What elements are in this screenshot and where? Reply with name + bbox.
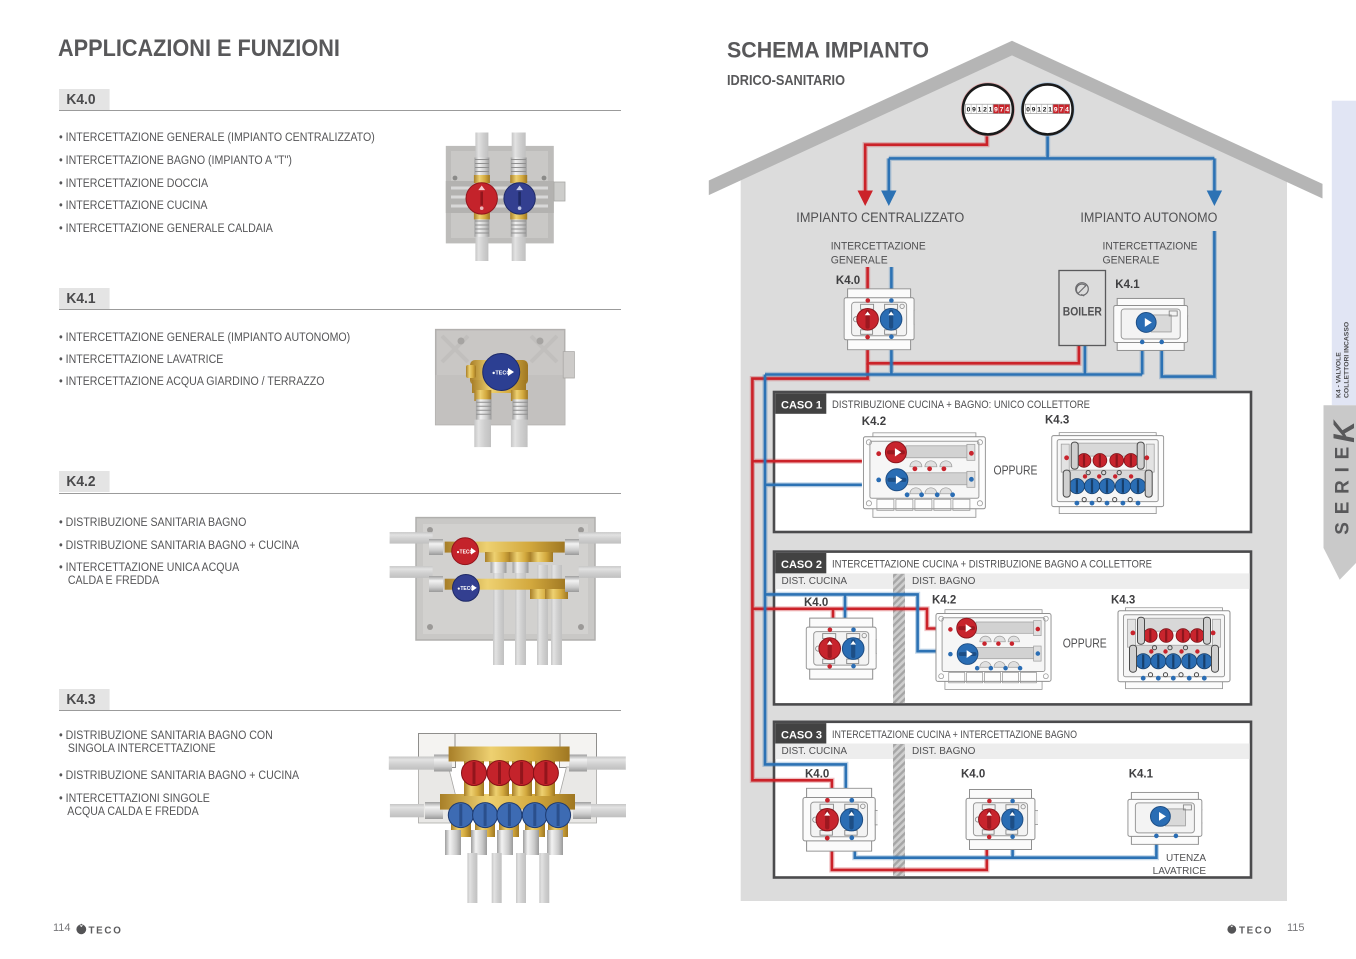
svg-text:K4 - VALVOLE: K4 - VALVOLE — [1336, 352, 1343, 398]
svg-text:IMPIANTO AUTONOMO: IMPIANTO AUTONOMO — [1080, 210, 1217, 225]
svg-text:K4.0: K4.0 — [805, 768, 829, 780]
svg-text:CASO 2: CASO 2 — [781, 559, 822, 571]
svg-text:K4.3: K4.3 — [1045, 414, 1069, 426]
svg-text:K4.2: K4.2 — [932, 594, 956, 606]
svg-text:SCHEMA IMPIANTO: SCHEMA IMPIANTO — [727, 38, 929, 63]
svg-text:K4.0: K4.0 — [804, 597, 828, 609]
svg-text:9: 9 — [972, 106, 976, 113]
svg-text:INTERCETTAZIONE: INTERCETTAZIONE — [831, 241, 926, 253]
svg-text:7: 7 — [1059, 106, 1063, 113]
svg-text:IDRICO-SANITARIO: IDRICO-SANITARIO — [727, 72, 845, 89]
svg-text:K4.2: K4.2 — [862, 416, 886, 428]
svg-text:K4.0: K4.0 — [961, 768, 985, 780]
svg-text:4: 4 — [1065, 106, 1069, 113]
svg-text:UTENZA: UTENZA — [1166, 853, 1206, 864]
svg-text:●TECO: ●TECO — [457, 586, 474, 592]
svg-text:BOILER: BOILER — [1063, 304, 1102, 318]
svg-text:9: 9 — [994, 106, 998, 113]
svg-text:●TECO: ●TECO — [457, 550, 474, 556]
svg-text:DIST. CUCINA: DIST. CUCINA — [782, 746, 848, 757]
svg-text:K: K — [1328, 419, 1356, 443]
svg-text:7: 7 — [1000, 106, 1004, 113]
svg-text:9: 9 — [1054, 106, 1058, 113]
svg-text:IMPIANTO CENTRALIZZATO: IMPIANTO CENTRALIZZATO — [796, 210, 964, 225]
svg-text:CASO 3: CASO 3 — [781, 729, 822, 741]
svg-text:GENERALE: GENERALE — [1103, 254, 1160, 266]
svg-text:K4.1: K4.1 — [1115, 279, 1140, 291]
svg-text:2: 2 — [1043, 106, 1047, 113]
svg-text:CASO 1: CASO 1 — [781, 400, 822, 412]
svg-text:1: 1 — [978, 106, 982, 113]
svg-text:OPPURE: OPPURE — [994, 464, 1038, 478]
svg-text:DIST. BAGNO: DIST. BAGNO — [912, 576, 976, 587]
svg-text:INTERCETTAZIONE CUCINA + INTER: INTERCETTAZIONE CUCINA + INTERCETTAZIONE… — [832, 729, 1077, 741]
svg-text:9: 9 — [1032, 106, 1036, 113]
svg-text:0: 0 — [967, 106, 971, 113]
svg-text:DIST. BAGNO: DIST. BAGNO — [912, 746, 976, 757]
svg-text:K4.3: K4.3 — [1111, 594, 1135, 606]
svg-text:INTERCETTAZIONE: INTERCETTAZIONE — [1103, 241, 1198, 253]
svg-text:K4.1: K4.1 — [1129, 768, 1154, 780]
svg-text:DIST. CUCINA: DIST. CUCINA — [782, 576, 848, 587]
svg-text:TECO: TECO — [89, 925, 123, 936]
svg-text:DISTRIBUZIONE CUCINA + BAGNO:: DISTRIBUZIONE CUCINA + BAGNO: UNICO COLL… — [832, 399, 1090, 411]
svg-text:1: 1 — [1048, 106, 1052, 113]
svg-text:INTERCETTAZIONE CUCINA + DISTR: INTERCETTAZIONE CUCINA + DISTRIBUZIONE B… — [832, 559, 1152, 571]
svg-text:4: 4 — [1005, 106, 1009, 113]
svg-text:1: 1 — [989, 106, 993, 113]
svg-text:OPPURE: OPPURE — [1063, 637, 1107, 651]
svg-text:COLLETTORI INCASSO: COLLETTORI INCASSO — [1344, 322, 1351, 398]
svg-text:GENERALE: GENERALE — [831, 254, 888, 266]
svg-text:LAVATRICE: LAVATRICE — [1153, 866, 1207, 877]
svg-text:K4.0: K4.0 — [836, 275, 860, 287]
svg-text:0: 0 — [1026, 106, 1030, 113]
svg-text:1: 1 — [1037, 106, 1041, 113]
svg-text:2: 2 — [983, 106, 987, 113]
